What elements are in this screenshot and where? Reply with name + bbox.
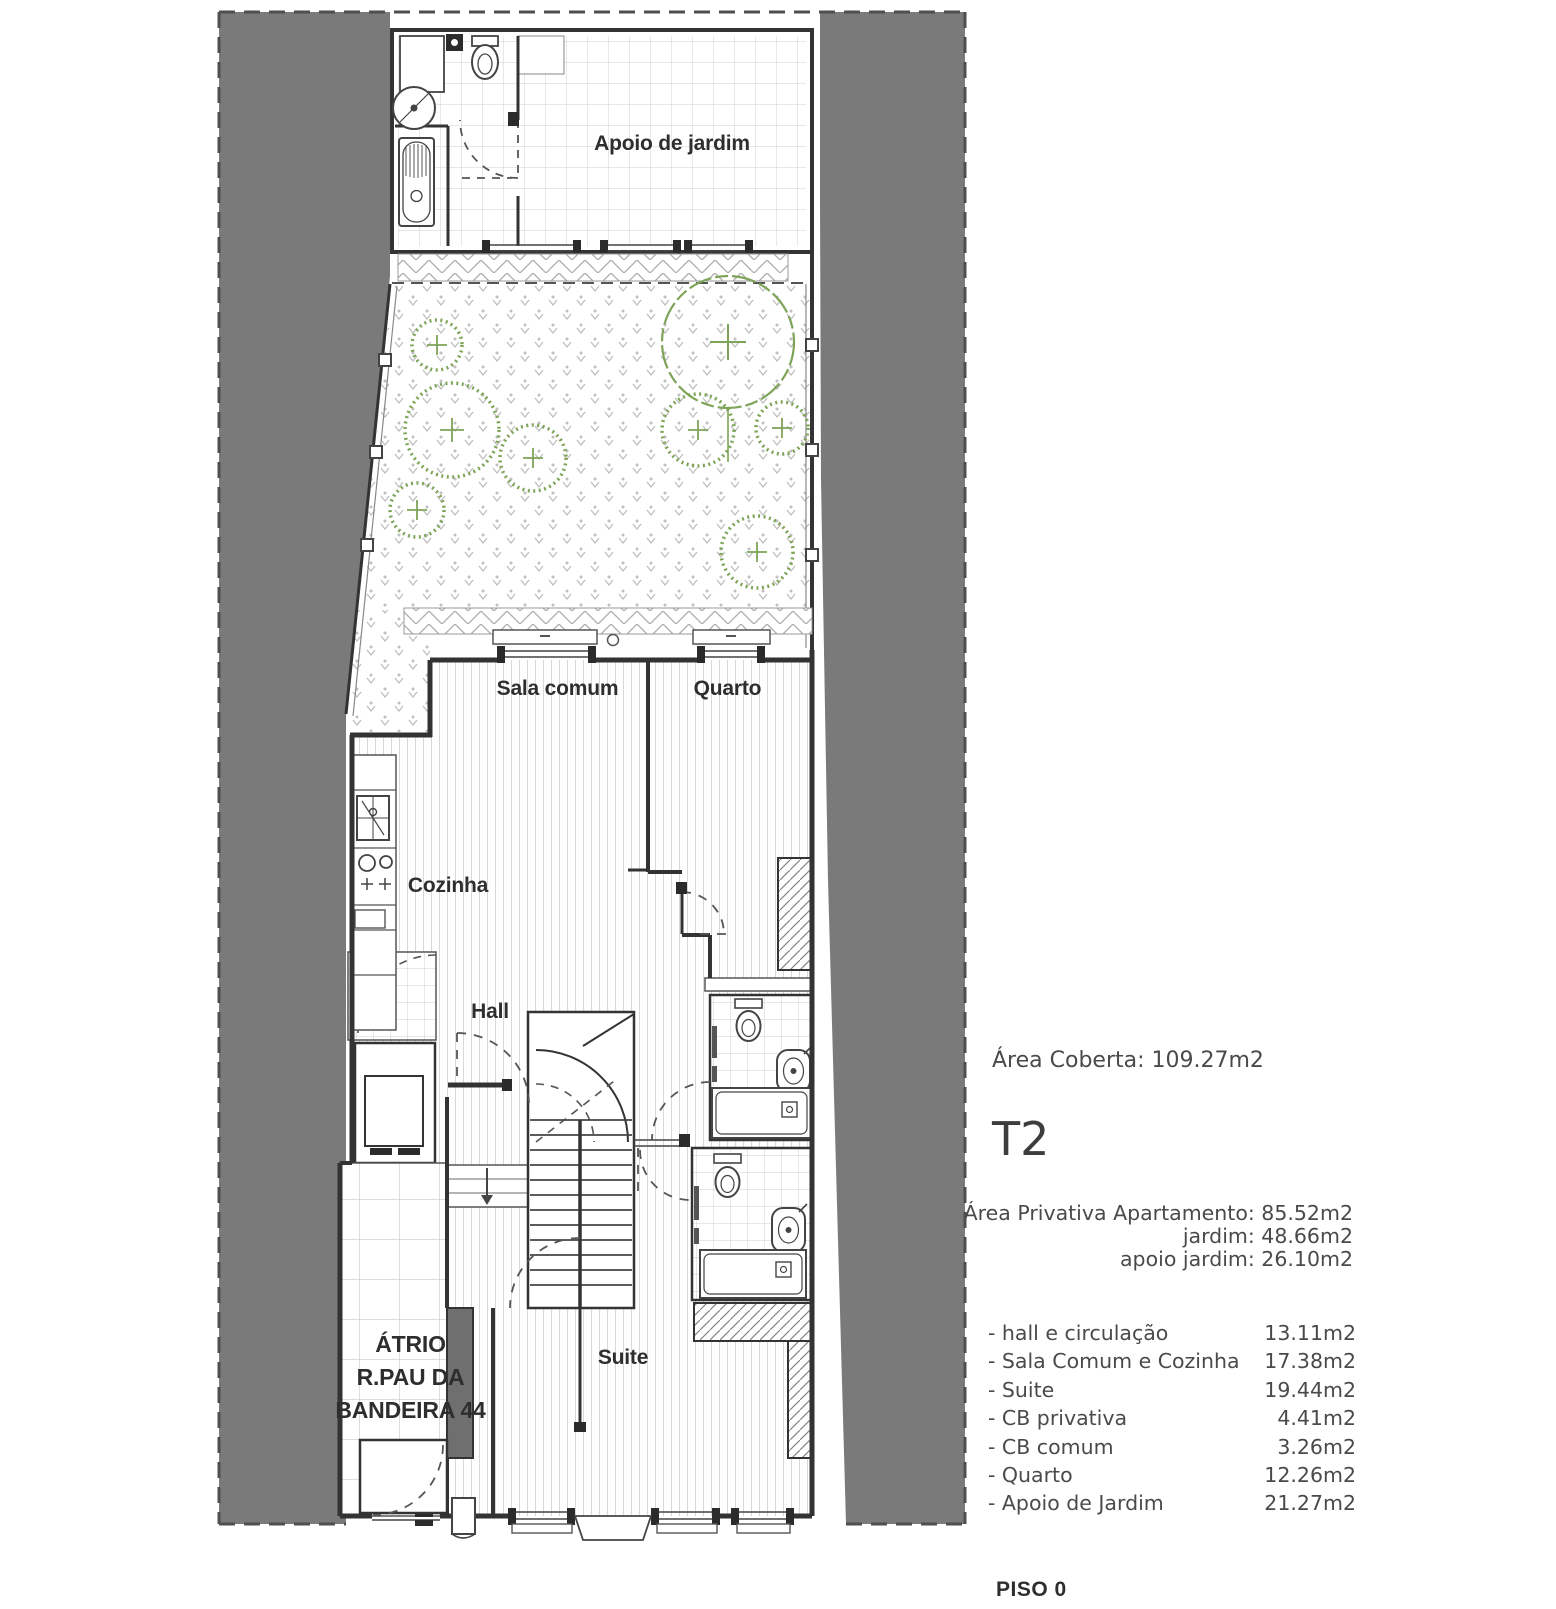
survey-marker [608, 635, 619, 646]
table-row: - CB comum 3.26m2 [988, 1435, 1356, 1463]
sink-icon [777, 1046, 812, 1092]
unit-type-label: T2 [992, 1112, 1049, 1166]
toilet-icon [714, 1154, 741, 1197]
bathtub-icon [712, 1088, 811, 1138]
door-jamb [508, 112, 519, 126]
bathroom-private [705, 978, 813, 1140]
floorplan-page: Apoio de jardim Sala comum Quarto Cozinh… [0, 0, 1556, 1609]
table-row: - Quarto 12.26m2 [988, 1463, 1356, 1491]
apoio-toilet-icon [472, 36, 498, 79]
shelf [705, 978, 811, 991]
apoio-sink-icon [393, 87, 435, 129]
bathtub-icon [700, 1250, 806, 1298]
room-label-hall: Hall [440, 1000, 540, 1024]
table-row: - Apoio de Jardim 21.27m2 [988, 1491, 1356, 1519]
entrance-pilaster [452, 1498, 475, 1534]
apoio-bathtub-icon [399, 138, 434, 226]
entry-steps [447, 1165, 528, 1207]
room-label-atrio: ÁTRIO R.PAU DA BANDEIRA 44 [328, 1328, 493, 1427]
table-row: - Suite 19.44m2 [988, 1378, 1356, 1406]
room-label-quarto: Quarto [655, 677, 800, 701]
room-label-apoio: Apoio de jardim [572, 132, 772, 156]
room-areas-table: - hall e circulação 13.11m2 - Sala Comum… [988, 1321, 1356, 1520]
staircase [528, 1012, 634, 1308]
toilet-icon [735, 999, 762, 1041]
sink-icon [772, 1204, 807, 1252]
floor-title: PISO 0 [996, 1578, 1067, 1602]
bathroom-common [692, 1148, 813, 1300]
room-label-suite: Suite [538, 1346, 708, 1370]
table-row: - hall e circulação 13.11m2 [988, 1321, 1356, 1349]
neighbor-building-right [820, 12, 965, 1524]
private-areas-block: Área Privativa Apartamento: 85.52m2 jard… [953, 1202, 1353, 1271]
entry-vestibule [360, 1440, 447, 1515]
table-row: - Sala Comum e Cozinha 17.38m2 [988, 1349, 1356, 1377]
room-label-cozinha: Cozinha [378, 874, 518, 898]
room-label-sala: Sala comum [460, 677, 655, 701]
table-row: - CB privativa 4.41m2 [988, 1406, 1356, 1434]
area-coberta-text: Área Coberta: 109.27m2 [992, 1048, 1264, 1073]
elevator [355, 1043, 435, 1163]
